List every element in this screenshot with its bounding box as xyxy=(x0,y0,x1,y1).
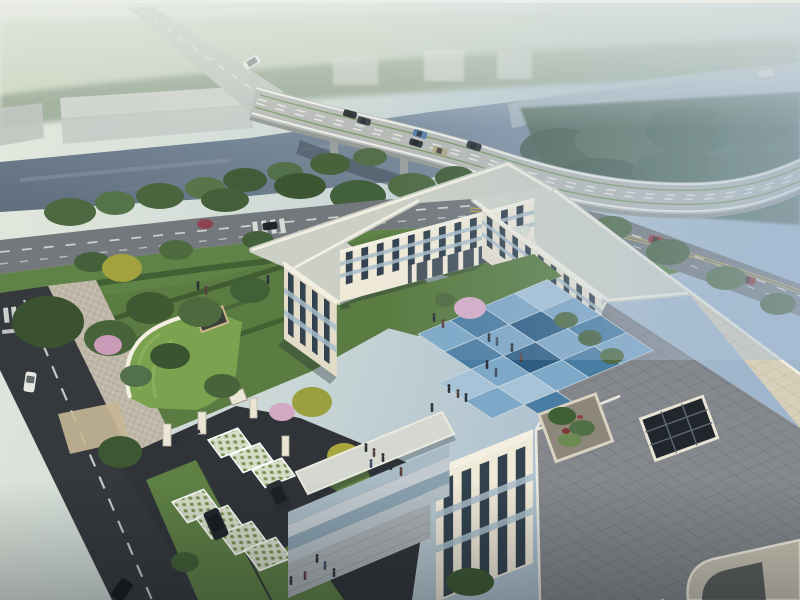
bottom-vignette xyxy=(0,0,800,600)
architectural-rendering xyxy=(0,0,800,600)
scene-canvas xyxy=(0,0,800,600)
